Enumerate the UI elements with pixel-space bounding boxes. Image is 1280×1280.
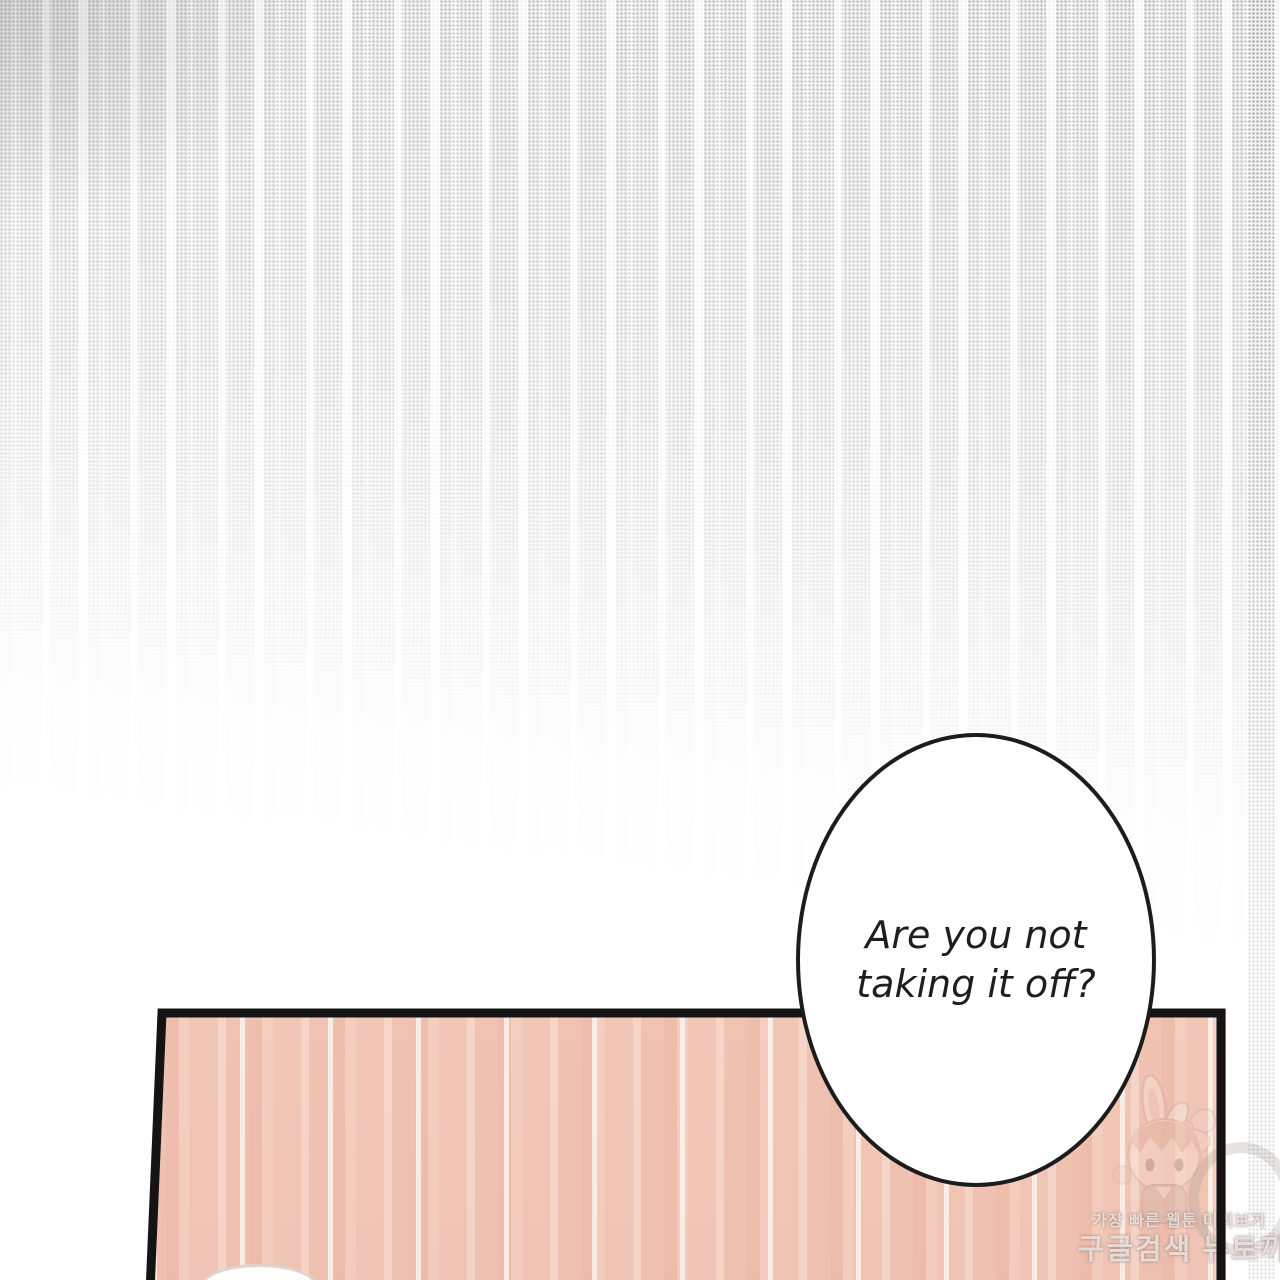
right-edge-screentone-stripe	[1248, 0, 1276, 1280]
webtoon-panel-canvas: 가장 빠른 웹툰 미리보기 구글검색 뉴토끼 Are you not takin…	[0, 0, 1280, 1280]
speech-bubble-text: Are you not taking it off?	[856, 911, 1095, 1009]
speech-line-1: Are you not	[856, 911, 1095, 960]
speech-line-2: taking it off?	[856, 960, 1095, 1009]
speech-bubble: Are you not taking it off?	[796, 733, 1156, 1187]
